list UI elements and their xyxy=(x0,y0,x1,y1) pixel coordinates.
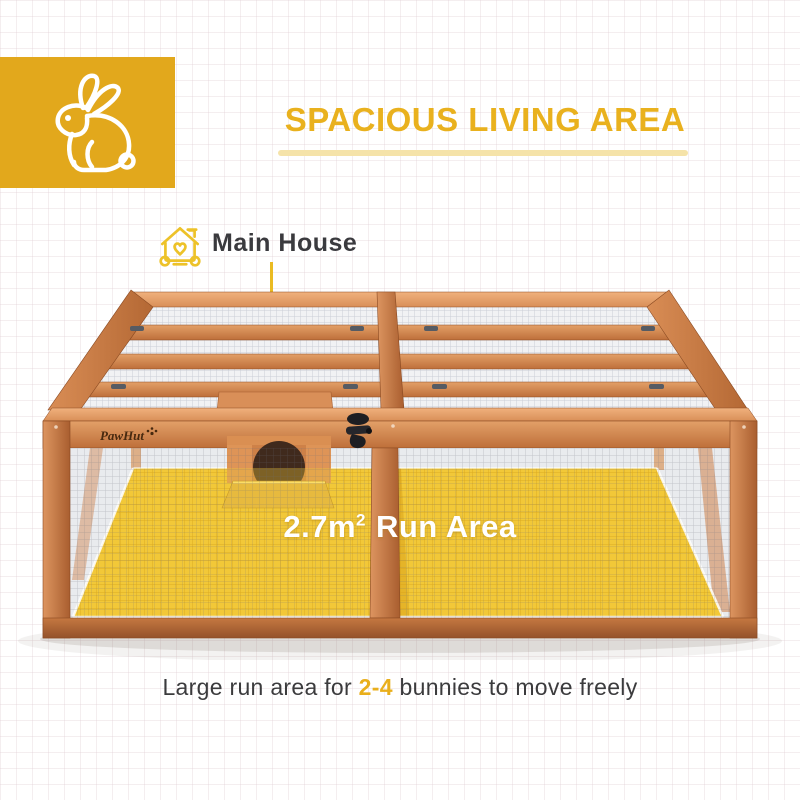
rabbit-icon xyxy=(28,67,148,179)
caption-highlight: 2-4 xyxy=(359,674,393,700)
rabbit-run-illustration: PawHut xyxy=(0,280,800,660)
callout-label: Main House xyxy=(212,229,357,258)
front-top-rail xyxy=(43,408,757,421)
run-area-label: 2.7m2Run Area xyxy=(0,509,800,545)
caption: Large run area for 2-4 bunnies to move f… xyxy=(0,674,800,701)
brand-badge xyxy=(0,57,175,188)
title-underline xyxy=(278,150,688,156)
brand-logo: PawHut xyxy=(100,428,144,443)
house-heart-icon xyxy=(155,221,205,269)
page-title: SPACIOUS LIVING AREA xyxy=(240,101,730,139)
